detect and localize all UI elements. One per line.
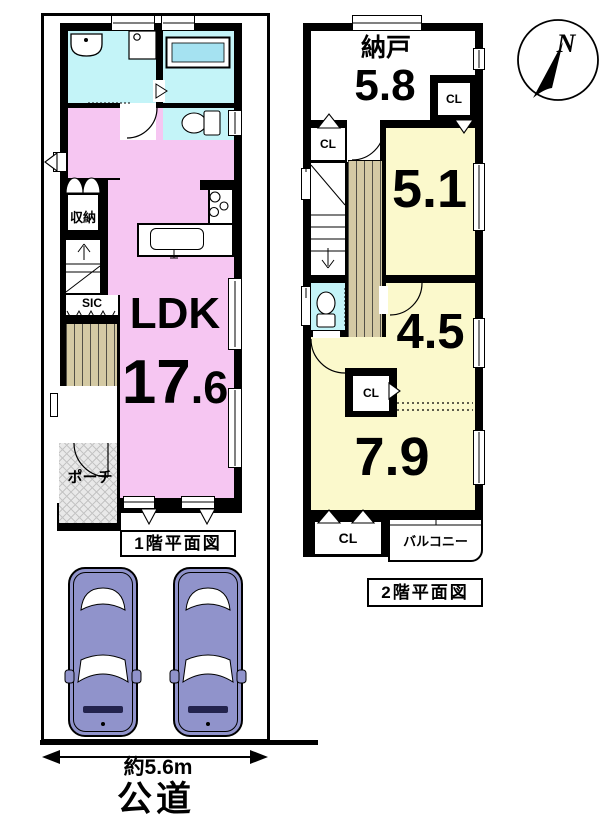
public-road-label: 公道 xyxy=(56,782,256,817)
entry-wood-floor xyxy=(66,322,117,388)
door-mark-west xyxy=(53,152,67,172)
stairs-2f xyxy=(311,163,345,275)
caption-floor1: 1階平面図 xyxy=(120,530,236,557)
toilet-room-1f xyxy=(163,108,234,140)
site-width-label: 約5.6m xyxy=(98,757,218,778)
window-ldk-south-2 xyxy=(181,496,215,509)
closet-middle: CL xyxy=(353,376,389,411)
floor1-plan xyxy=(60,23,242,513)
hall-2f xyxy=(347,120,380,162)
ldk-area-label: 17.6 xyxy=(114,352,236,414)
balcony: バルコニー xyxy=(388,518,483,562)
kitchen-sink xyxy=(150,228,204,250)
ldk-name-label: LDK xyxy=(123,292,227,336)
sic-label: SIC xyxy=(66,297,118,309)
porch-label: ポーチ xyxy=(62,470,118,485)
nando-name-label: 納戸 xyxy=(344,36,428,61)
window-ldk-south-1 xyxy=(123,496,155,509)
room-4-5-label: 4.5 xyxy=(384,308,477,357)
window-top-1 xyxy=(111,15,155,31)
window-nando-east xyxy=(473,48,485,70)
nando-area-label: 5.8 xyxy=(342,64,428,108)
hall-by-toilet xyxy=(120,103,156,140)
road-edge-line xyxy=(40,740,318,745)
ldk-area-decimal: .6 xyxy=(191,362,229,413)
caption-floor2: 2階平面図 xyxy=(367,578,483,607)
stairs-1f xyxy=(66,240,100,293)
window-nando-top xyxy=(352,15,422,31)
genkan-entry xyxy=(60,386,117,443)
window-toilet-1f xyxy=(228,110,242,136)
bathroom xyxy=(163,31,234,103)
ldk-area-main: 17 xyxy=(122,348,191,417)
ldk-upper-left xyxy=(68,108,120,178)
window-ldk-east-1 xyxy=(228,278,242,350)
room-7-9-label: 7.9 xyxy=(334,430,450,484)
washroom xyxy=(68,31,156,103)
compass-north-label: N xyxy=(556,29,577,58)
room-5-1-label: 5.1 xyxy=(383,162,476,216)
floorplan-canvas: CL CL CL CL バルコニー 1階平面図 2階平面図 xyxy=(0,0,614,830)
closet-bottom: CL xyxy=(315,522,381,554)
window-stairs-west xyxy=(301,168,311,200)
window-toilet-west xyxy=(301,286,311,326)
window-top-2 xyxy=(161,15,195,31)
window-genkan-west xyxy=(50,393,58,417)
toilet-room-2f xyxy=(311,283,345,330)
closet-top: CL xyxy=(438,83,470,115)
closet-left: CL xyxy=(311,128,345,160)
compass-icon: N xyxy=(518,20,598,100)
storage-label: 収納 xyxy=(66,211,100,224)
ldk-left-strip xyxy=(108,180,120,295)
window-79-east xyxy=(473,430,485,485)
